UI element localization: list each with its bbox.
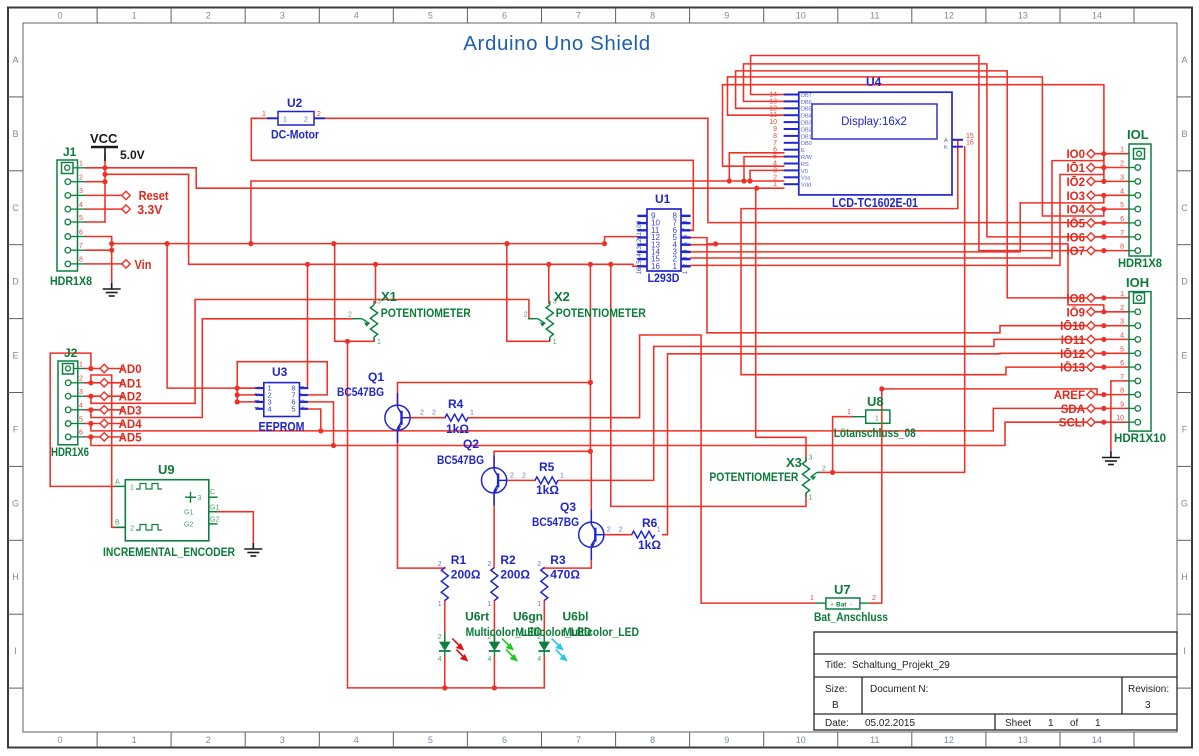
svg-text:2: 2 xyxy=(537,634,541,641)
svg-text:4: 4 xyxy=(488,656,492,663)
svg-text:Multicolor_LED: Multicolor_LED xyxy=(563,625,639,639)
svg-text:3: 3 xyxy=(198,495,202,502)
svg-text:G: G xyxy=(12,498,19,508)
svg-text:Display:16x2: Display:16x2 xyxy=(841,116,907,128)
svg-text:5: 5 xyxy=(1120,346,1124,353)
svg-text:AREF: AREF xyxy=(1054,390,1085,402)
svg-text:2: 2 xyxy=(79,376,83,383)
svg-text:H: H xyxy=(1181,572,1188,582)
svg-text:X1: X1 xyxy=(381,289,397,304)
svg-text:5: 5 xyxy=(79,416,83,423)
svg-text:AD5: AD5 xyxy=(119,430,142,444)
svg-text:3: 3 xyxy=(1145,700,1151,711)
svg-text:Sheet: Sheet xyxy=(1005,718,1031,729)
svg-text:7: 7 xyxy=(1120,230,1124,237)
svg-text:1kΩ: 1kΩ xyxy=(638,538,661,552)
svg-text:14: 14 xyxy=(1092,735,1102,745)
svg-text:U2: U2 xyxy=(287,96,303,110)
svg-text:SCLI: SCLI xyxy=(1059,418,1085,430)
svg-text:7: 7 xyxy=(1120,374,1124,381)
svg-text:2: 2 xyxy=(304,117,308,124)
svg-text:IO11: IO11 xyxy=(1061,335,1086,347)
svg-text:3: 3 xyxy=(809,455,813,462)
svg-text:9: 9 xyxy=(724,735,729,745)
svg-text:IŌ9: IŌ9 xyxy=(1066,307,1085,319)
svg-text:2: 2 xyxy=(1120,161,1124,168)
svg-text:7: 7 xyxy=(576,11,581,21)
svg-text:1: 1 xyxy=(262,111,266,118)
svg-text:2: 2 xyxy=(619,527,623,534)
svg-text:11: 11 xyxy=(870,735,879,745)
svg-text:0: 0 xyxy=(57,735,62,745)
svg-text:1: 1 xyxy=(847,409,851,416)
svg-text:DB2: DB2 xyxy=(801,127,812,133)
svg-text:1: 1 xyxy=(810,595,814,602)
svg-text:R2: R2 xyxy=(500,553,516,567)
svg-text:16: 16 xyxy=(637,267,643,274)
svg-text:1: 1 xyxy=(553,339,557,346)
svg-text:G2: G2 xyxy=(210,517,219,524)
svg-text:12: 12 xyxy=(944,735,954,745)
svg-text:2: 2 xyxy=(537,561,541,568)
svg-text:3.3V: 3.3V xyxy=(137,203,163,217)
svg-text:IŌ1: IŌ1 xyxy=(1066,163,1085,175)
svg-text:Reset: Reset xyxy=(139,189,170,203)
svg-text:4: 4 xyxy=(268,404,272,413)
svg-text:R5: R5 xyxy=(539,460,555,474)
svg-text:IOH: IOH xyxy=(1126,275,1149,290)
svg-text:4: 4 xyxy=(354,735,359,745)
svg-text:B: B xyxy=(115,520,120,527)
svg-text:4: 4 xyxy=(1120,188,1124,195)
svg-text:Vss: Vss xyxy=(801,176,811,182)
svg-text:1: 1 xyxy=(470,410,474,417)
svg-text:A: A xyxy=(1181,55,1187,65)
svg-text:of: of xyxy=(1070,718,1079,729)
svg-text:U3: U3 xyxy=(272,365,288,379)
svg-text:2: 2 xyxy=(487,561,491,568)
svg-text:E: E xyxy=(12,351,18,361)
svg-text:I: I xyxy=(14,646,17,656)
svg-text:1: 1 xyxy=(438,601,442,608)
svg-text:D: D xyxy=(1181,277,1188,287)
svg-text:IŌ10: IŌ10 xyxy=(1060,321,1085,333)
svg-text:G1: G1 xyxy=(210,505,219,512)
svg-text:4: 4 xyxy=(79,202,83,209)
svg-text:3: 3 xyxy=(1120,319,1124,326)
svg-text:1: 1 xyxy=(132,11,137,21)
svg-text:9: 9 xyxy=(1120,401,1124,408)
svg-text:DB3: DB3 xyxy=(801,121,812,127)
svg-text:DB7: DB7 xyxy=(801,93,812,99)
svg-text:Document N:: Document N: xyxy=(870,684,928,695)
svg-text:4: 4 xyxy=(537,656,541,663)
svg-text:AD1: AD1 xyxy=(119,376,142,390)
svg-text:Lötanschluss_08: Lötanschluss_08 xyxy=(834,426,916,440)
svg-text:AD0: AD0 xyxy=(119,362,142,376)
svg-text:IO4: IO4 xyxy=(1066,205,1085,217)
svg-text:BC547BG: BC547BG xyxy=(437,453,484,467)
svg-text:7: 7 xyxy=(576,735,581,745)
svg-text:11: 11 xyxy=(870,11,879,21)
svg-text:8: 8 xyxy=(650,735,655,745)
svg-text:U1: U1 xyxy=(655,192,671,206)
svg-text:Q2: Q2 xyxy=(463,437,479,451)
svg-text:E: E xyxy=(1181,351,1187,361)
svg-text:16: 16 xyxy=(651,262,660,271)
svg-text:U8: U8 xyxy=(867,394,884,409)
svg-text:DC-Motor: DC-Motor xyxy=(271,130,319,142)
svg-text:HDR1X10: HDR1X10 xyxy=(1114,433,1166,445)
svg-text:470Ω: 470Ω xyxy=(550,568,580,582)
svg-text:1: 1 xyxy=(1120,291,1124,298)
svg-text:B: B xyxy=(1181,129,1187,139)
svg-text:U6rt: U6rt xyxy=(465,610,489,624)
svg-text:L293D: L293D xyxy=(648,271,680,285)
svg-text:F: F xyxy=(1182,425,1188,435)
svg-text:DB5: DB5 xyxy=(801,107,812,113)
svg-text:K: K xyxy=(944,145,948,151)
svg-text:R3: R3 xyxy=(550,553,566,567)
svg-text:POTENTIOMETER: POTENTIOMETER xyxy=(556,306,646,320)
svg-text:1: 1 xyxy=(487,601,491,608)
svg-text:IO6: IO6 xyxy=(1066,232,1085,244)
svg-text:2: 2 xyxy=(524,312,528,319)
svg-text:12: 12 xyxy=(944,11,954,21)
svg-text:4: 4 xyxy=(438,656,442,663)
svg-text:IŌ12: IŌ12 xyxy=(1060,349,1085,361)
svg-text:G1: G1 xyxy=(184,510,193,517)
svg-text:X3: X3 xyxy=(786,455,802,470)
svg-text:G: G xyxy=(1181,498,1188,508)
svg-text:200Ω: 200Ω xyxy=(451,568,481,582)
svg-text:U4: U4 xyxy=(866,75,882,89)
svg-text:2: 2 xyxy=(1120,305,1124,312)
svg-text:IŌ2: IŌ2 xyxy=(1066,177,1085,189)
svg-text:5: 5 xyxy=(79,215,83,222)
svg-text:1: 1 xyxy=(79,361,83,368)
svg-text:05.02.2015: 05.02.2015 xyxy=(865,718,915,729)
svg-text:5: 5 xyxy=(1120,202,1124,209)
svg-text:Vdd: Vdd xyxy=(801,183,811,189)
svg-text:8: 8 xyxy=(1120,388,1124,395)
svg-text:3: 3 xyxy=(280,11,285,21)
svg-text:R1: R1 xyxy=(451,553,467,567)
svg-text:R4: R4 xyxy=(448,397,464,411)
svg-text:U7: U7 xyxy=(834,582,851,597)
svg-text:Schaltung_Projekt_29: Schaltung_Projekt_29 xyxy=(852,660,950,671)
svg-text:6: 6 xyxy=(502,735,507,745)
svg-text:Q3: Q3 xyxy=(560,500,576,514)
svg-text:6: 6 xyxy=(1120,360,1124,367)
svg-text:C: C xyxy=(1181,203,1188,213)
svg-text:1: 1 xyxy=(875,416,879,423)
svg-text:10: 10 xyxy=(796,11,806,21)
svg-text:5: 5 xyxy=(428,11,433,21)
svg-text:Bat_Anschluss: Bat_Anschluss xyxy=(814,610,888,624)
svg-text:8: 8 xyxy=(79,257,83,264)
svg-text:1: 1 xyxy=(1120,147,1124,154)
svg-text:1: 1 xyxy=(673,262,678,271)
svg-text:1: 1 xyxy=(132,735,137,745)
svg-text:R/W: R/W xyxy=(801,155,813,161)
svg-text:10: 10 xyxy=(1116,415,1124,422)
svg-text:2: 2 xyxy=(438,561,442,568)
svg-text:14: 14 xyxy=(1092,11,1102,21)
svg-text:D: D xyxy=(12,277,19,287)
svg-text:H: H xyxy=(12,572,19,582)
svg-text:+: + xyxy=(830,602,834,609)
svg-text:BC547BG: BC547BG xyxy=(337,385,384,399)
svg-text:V0: V0 xyxy=(801,169,808,175)
svg-text:1kΩ: 1kΩ xyxy=(446,422,469,436)
svg-text:HDR1X6: HDR1X6 xyxy=(51,447,89,459)
svg-text:Bat: Bat xyxy=(836,602,847,609)
svg-text:2: 2 xyxy=(432,410,436,417)
svg-text:B: B xyxy=(12,129,18,139)
svg-text:1: 1 xyxy=(79,161,83,168)
svg-text:Revision:: Revision: xyxy=(1128,684,1169,695)
svg-text:8: 8 xyxy=(1120,244,1124,251)
svg-text:J2: J2 xyxy=(64,346,78,360)
svg-text:F: F xyxy=(13,425,19,435)
svg-text:2: 2 xyxy=(872,595,876,602)
svg-text:U9: U9 xyxy=(158,462,175,477)
svg-text:13: 13 xyxy=(1018,11,1028,21)
svg-text:1: 1 xyxy=(1095,718,1101,729)
svg-text:DB0: DB0 xyxy=(801,141,812,147)
svg-text:2: 2 xyxy=(822,466,826,473)
svg-text:POTENTIOMETER: POTENTIOMETER xyxy=(381,306,471,320)
svg-text:1: 1 xyxy=(1048,718,1054,729)
svg-text:Date:: Date: xyxy=(825,718,849,729)
svg-text:HDR1X8: HDR1X8 xyxy=(50,276,93,288)
svg-text:2: 2 xyxy=(79,175,83,182)
svg-text:5.0V: 5.0V xyxy=(120,148,145,162)
svg-text:IO3: IO3 xyxy=(1066,191,1085,203)
svg-text:POTENTIOMETER: POTENTIOMETER xyxy=(709,470,798,484)
svg-text:INCREMENTAL_ENCODER: INCREMENTAL_ENCODER xyxy=(103,545,235,559)
svg-text:3: 3 xyxy=(280,735,285,745)
svg-text:6: 6 xyxy=(79,430,83,437)
svg-text:IO0: IO0 xyxy=(1066,149,1085,161)
svg-text:6: 6 xyxy=(1120,216,1124,223)
svg-text:2: 2 xyxy=(206,11,211,21)
svg-text:3: 3 xyxy=(79,389,83,396)
svg-text:10: 10 xyxy=(796,735,806,745)
svg-text:1: 1 xyxy=(560,472,564,479)
svg-text:SDA: SDA xyxy=(1061,404,1085,416)
svg-text:IOL: IOL xyxy=(1127,127,1149,142)
svg-text:1: 1 xyxy=(809,495,813,502)
svg-text:C: C xyxy=(12,203,19,213)
svg-text:2: 2 xyxy=(348,312,352,319)
svg-text:3: 3 xyxy=(79,188,83,195)
svg-text:5: 5 xyxy=(291,404,295,413)
svg-text:C: C xyxy=(210,489,215,496)
svg-text:2: 2 xyxy=(522,472,526,479)
svg-text:2: 2 xyxy=(510,472,514,479)
svg-text:IO8: IO8 xyxy=(1066,293,1085,305)
svg-text:R6: R6 xyxy=(642,516,658,530)
svg-text:EEPROM: EEPROM xyxy=(259,419,305,434)
svg-text:2: 2 xyxy=(317,111,321,118)
svg-text:7: 7 xyxy=(79,243,83,250)
svg-text:DB6: DB6 xyxy=(801,100,812,106)
svg-text:E: E xyxy=(801,148,805,154)
svg-text:2: 2 xyxy=(438,634,442,641)
svg-text:A: A xyxy=(944,138,948,144)
svg-text:6: 6 xyxy=(79,229,83,236)
svg-text:1: 1 xyxy=(773,181,777,188)
svg-text:BC547BG: BC547BG xyxy=(532,515,579,529)
svg-text:B: B xyxy=(832,700,839,711)
svg-text:6: 6 xyxy=(502,11,507,21)
svg-text:1: 1 xyxy=(377,339,381,346)
svg-text:G2: G2 xyxy=(184,522,193,529)
svg-text:16: 16 xyxy=(966,140,974,147)
svg-text:X2: X2 xyxy=(554,289,570,304)
svg-text:2: 2 xyxy=(206,735,211,745)
svg-text:1: 1 xyxy=(657,527,661,534)
svg-text:RS: RS xyxy=(801,162,809,168)
svg-text:DB4: DB4 xyxy=(801,114,812,120)
svg-text:LCD-TC1602E-01: LCD-TC1602E-01 xyxy=(832,196,918,210)
svg-text:4: 4 xyxy=(79,403,83,410)
svg-text:DB1: DB1 xyxy=(801,134,812,140)
svg-text:AD2: AD2 xyxy=(119,390,142,404)
svg-text:2: 2 xyxy=(420,410,424,417)
svg-text:Q1: Q1 xyxy=(368,370,384,384)
svg-text:HDR1X8: HDR1X8 xyxy=(1118,258,1163,270)
svg-text:I: I xyxy=(1183,646,1186,656)
svg-text:2: 2 xyxy=(488,634,492,641)
svg-text:4: 4 xyxy=(354,11,359,21)
svg-text:IŌ13: IŌ13 xyxy=(1060,363,1085,375)
svg-text:A: A xyxy=(115,479,120,486)
svg-text:8: 8 xyxy=(650,11,655,21)
svg-text:1kΩ: 1kΩ xyxy=(536,483,559,497)
svg-text:13: 13 xyxy=(1018,735,1028,745)
svg-text:9: 9 xyxy=(724,11,729,21)
svg-text:2: 2 xyxy=(130,526,134,533)
svg-text:Size:: Size: xyxy=(825,684,847,695)
svg-text:U6bl: U6bl xyxy=(563,610,589,624)
svg-text:U6gn: U6gn xyxy=(513,610,543,624)
svg-text:3: 3 xyxy=(1120,174,1124,181)
svg-text:1: 1 xyxy=(130,485,134,492)
svg-text:Arduino Uno Shield: Arduino Uno Shield xyxy=(463,32,650,55)
svg-text:IO7: IO7 xyxy=(1066,246,1085,258)
svg-text:2: 2 xyxy=(607,527,611,534)
svg-text:AD3: AD3 xyxy=(119,403,142,417)
svg-text:J1: J1 xyxy=(63,145,77,159)
svg-text:Title:: Title: xyxy=(825,660,846,671)
svg-text:1: 1 xyxy=(537,601,541,608)
svg-text:VCC: VCC xyxy=(90,131,118,146)
svg-text:Vin: Vin xyxy=(135,258,152,272)
svg-text:4: 4 xyxy=(1120,332,1124,339)
svg-text:200Ω: 200Ω xyxy=(500,568,530,582)
svg-text:5: 5 xyxy=(428,735,433,745)
svg-text:A: A xyxy=(12,55,18,65)
svg-text:AD4: AD4 xyxy=(119,417,142,431)
svg-text:0: 0 xyxy=(57,11,62,21)
svg-text:IŌ5: IŌ5 xyxy=(1066,218,1085,230)
svg-text:1: 1 xyxy=(283,117,287,124)
